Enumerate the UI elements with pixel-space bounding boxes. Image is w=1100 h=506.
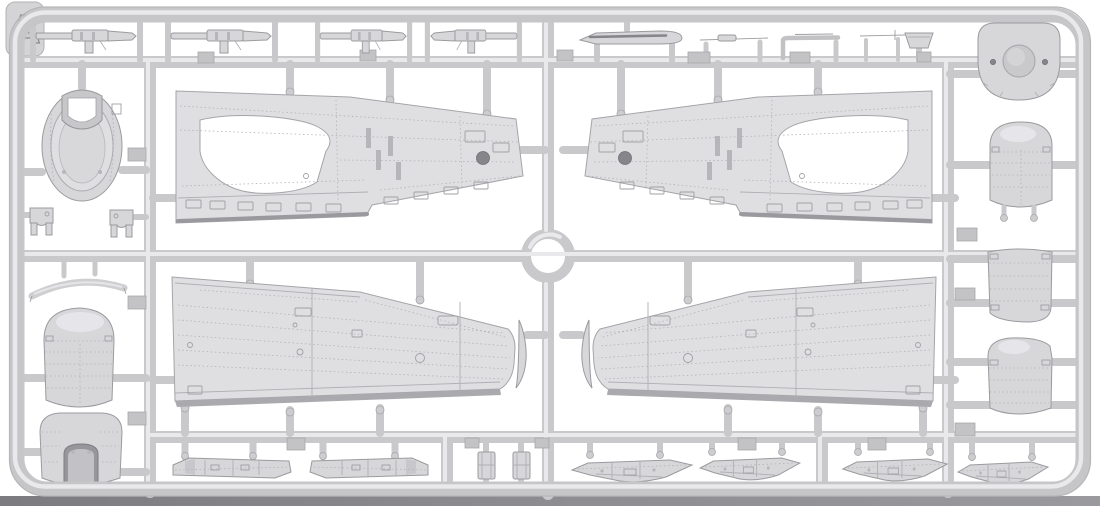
cowling-nose-ring <box>42 90 122 201</box>
lower-wing-half-right <box>563 262 955 433</box>
cowl-flap-strip-1 <box>572 460 692 482</box>
cowling-dome-panel-left <box>44 308 114 407</box>
hinge-bracket-2 <box>110 210 133 237</box>
lower-wing-half-left <box>153 262 545 433</box>
radiator-block-2 <box>513 452 530 479</box>
wheel-bay-door-1 <box>173 458 291 478</box>
machine-gun-1 <box>33 22 140 60</box>
radiator-block-1 <box>478 452 495 479</box>
sprue-photo: A <box>0 0 1100 506</box>
cowling-bottom-panel <box>40 413 122 485</box>
wheel-bay-door-2 <box>310 458 428 478</box>
pitot-tube-1 <box>700 35 768 41</box>
cowling-dome-panel-right <box>990 122 1052 222</box>
upper-wing-half-right <box>563 64 955 223</box>
engine-bulkhead-disc <box>978 23 1060 100</box>
machine-gun-4 <box>427 22 519 60</box>
cowling-side-panel-2 <box>988 338 1052 414</box>
cowl-flap-strip-4 <box>958 462 1048 484</box>
cowling-side-panel-1 <box>988 249 1052 322</box>
cowl-lip-segment <box>30 282 126 302</box>
cowl-flap-strip-3 <box>843 459 947 481</box>
machine-gun-2 <box>168 22 275 60</box>
cowl-flap-strip-2 <box>700 458 800 480</box>
gun-barrel-blade <box>580 31 682 44</box>
sprue-render: A <box>0 0 1100 506</box>
hinge-bracket-1 <box>30 208 53 235</box>
intake-scoop <box>905 33 933 48</box>
upper-wing-half-left <box>153 64 545 223</box>
